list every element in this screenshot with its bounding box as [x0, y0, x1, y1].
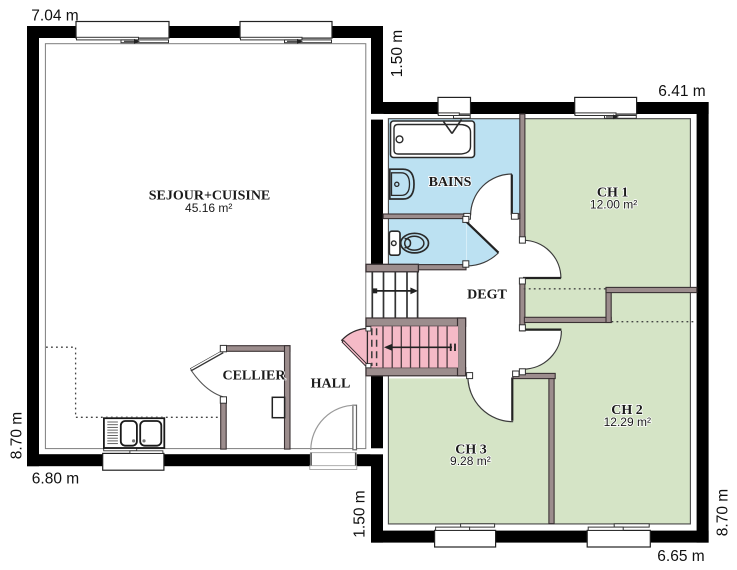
svg-text:12.29 m²: 12.29 m² — [604, 415, 651, 429]
svg-text:12.00 m²: 12.00 m² — [590, 198, 637, 212]
svg-text:CELLIER: CELLIER — [222, 369, 286, 384]
svg-text:1.50 m: 1.50 m — [351, 490, 368, 537]
svg-text:6.41 m: 6.41 m — [658, 83, 705, 100]
svg-text:9.28 m²: 9.28 m² — [450, 454, 491, 468]
svg-text:7.04 m: 7.04 m — [31, 7, 78, 24]
svg-text:BAINS: BAINS — [429, 175, 472, 190]
svg-text:6.80 m: 6.80 m — [32, 470, 79, 487]
svg-text:1.50 m: 1.50 m — [389, 30, 406, 77]
svg-text:8.70 m: 8.70 m — [8, 412, 25, 459]
svg-text:DEGT: DEGT — [467, 288, 507, 303]
svg-text:6.65 m: 6.65 m — [657, 548, 704, 565]
svg-text:HALL: HALL — [311, 377, 351, 392]
svg-text:8.70 m: 8.70 m — [714, 489, 731, 536]
svg-text:45.16 m²: 45.16 m² — [185, 201, 232, 215]
